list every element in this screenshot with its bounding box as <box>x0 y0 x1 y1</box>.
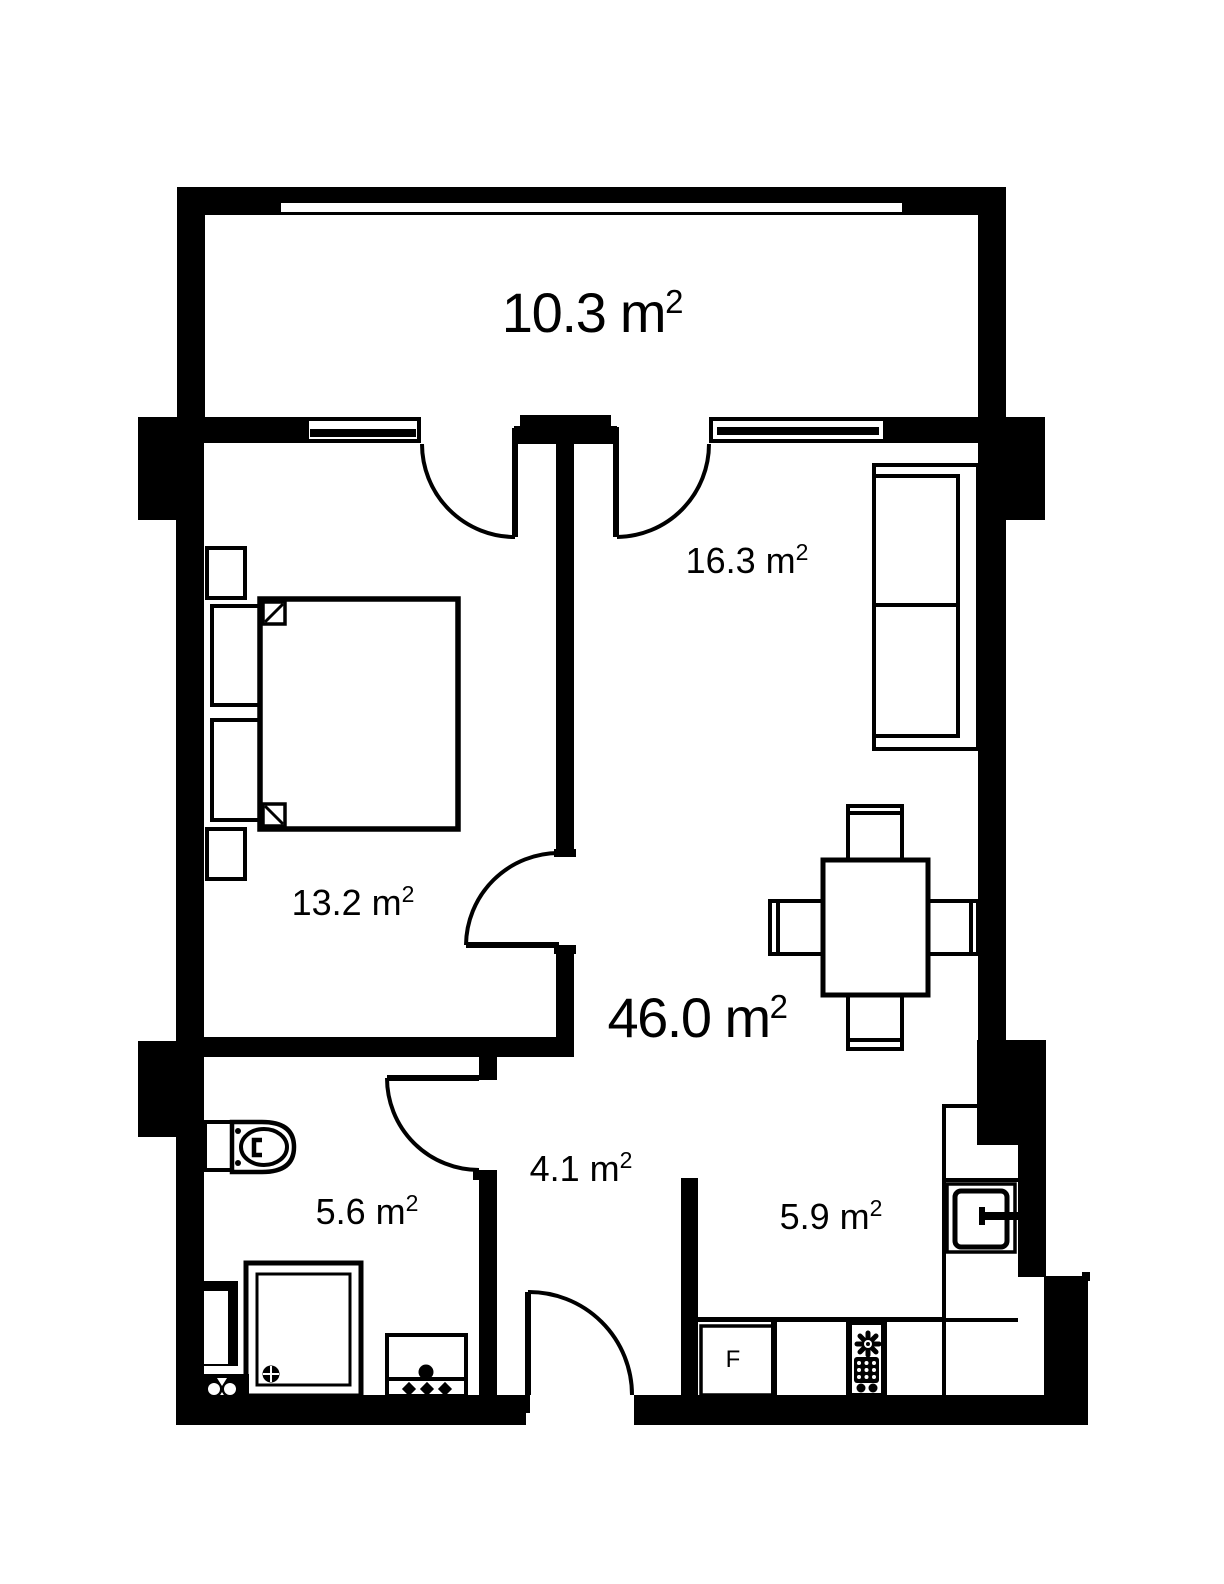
svg-text:13.2 m2: 13.2 m2 <box>292 881 415 923</box>
svg-text:5.6 m2: 5.6 m2 <box>316 1190 419 1232</box>
svg-text:16.3 m2: 16.3 m2 <box>686 539 809 581</box>
svg-text:F: F <box>726 1346 741 1373</box>
svg-text:10.3 m2: 10.3 m2 <box>502 281 682 344</box>
svg-text:4.1 m2: 4.1 m2 <box>530 1147 633 1189</box>
svg-text:5.9 m2: 5.9 m2 <box>780 1195 883 1237</box>
svg-text:46.0 m2: 46.0 m2 <box>607 986 786 1049</box>
